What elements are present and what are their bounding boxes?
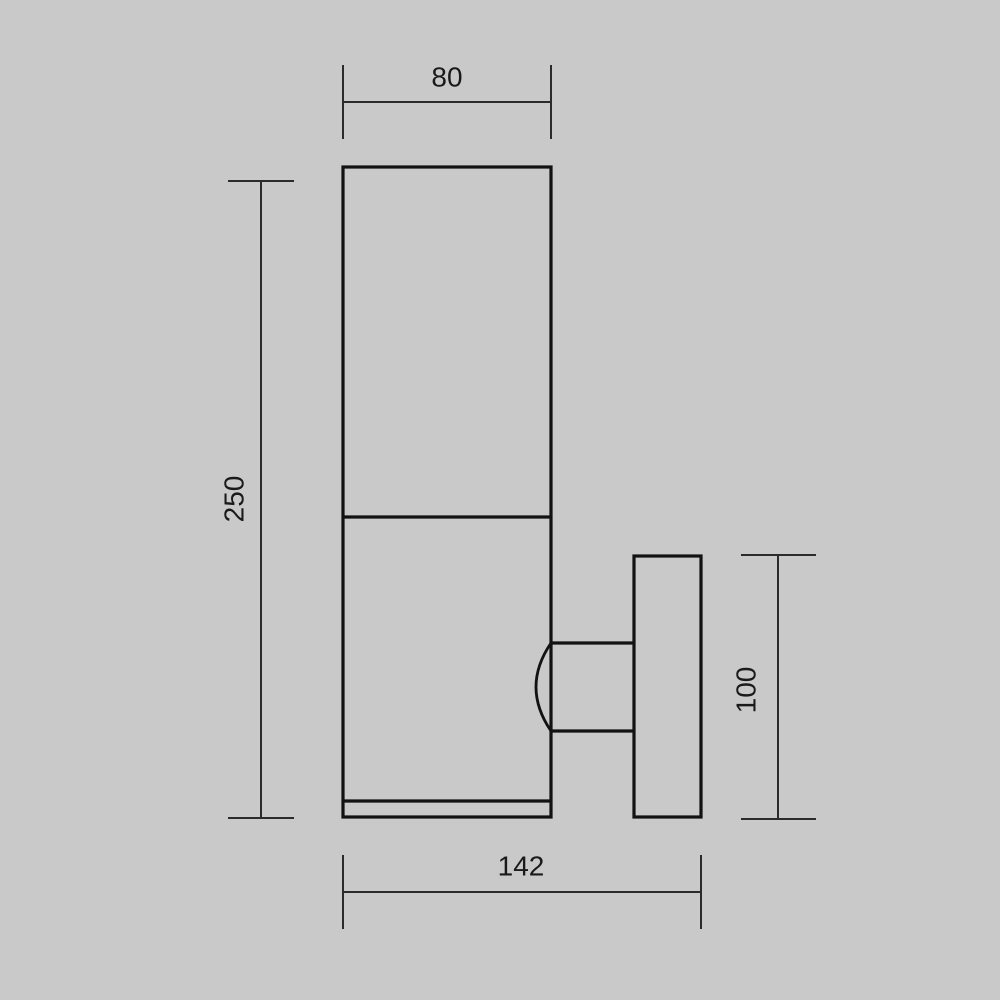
dim-label-bottom-depth: 142 — [498, 851, 545, 882]
dim-label-top-width: 80 — [431, 62, 462, 93]
dimension-right-plate-height: 100 — [731, 555, 817, 819]
dimension-bottom-depth: 142 — [343, 851, 701, 930]
technical-drawing-canvas: 80 250 100 142 — [0, 0, 1000, 1000]
wall-lamp-dimension-drawing: 80 250 100 142 — [0, 0, 1000, 1000]
dimension-top-width: 80 — [343, 62, 551, 140]
wall-plate-outline — [634, 556, 701, 817]
wall-plate — [634, 556, 701, 817]
dim-label-left-height: 250 — [219, 476, 250, 523]
arm-body-intersection-arc — [536, 643, 551, 731]
lamp-body — [343, 167, 551, 817]
lamp-body-outline — [343, 167, 551, 817]
dimension-left-height: 250 — [219, 181, 295, 818]
dim-label-right-plate-height: 100 — [731, 667, 762, 714]
